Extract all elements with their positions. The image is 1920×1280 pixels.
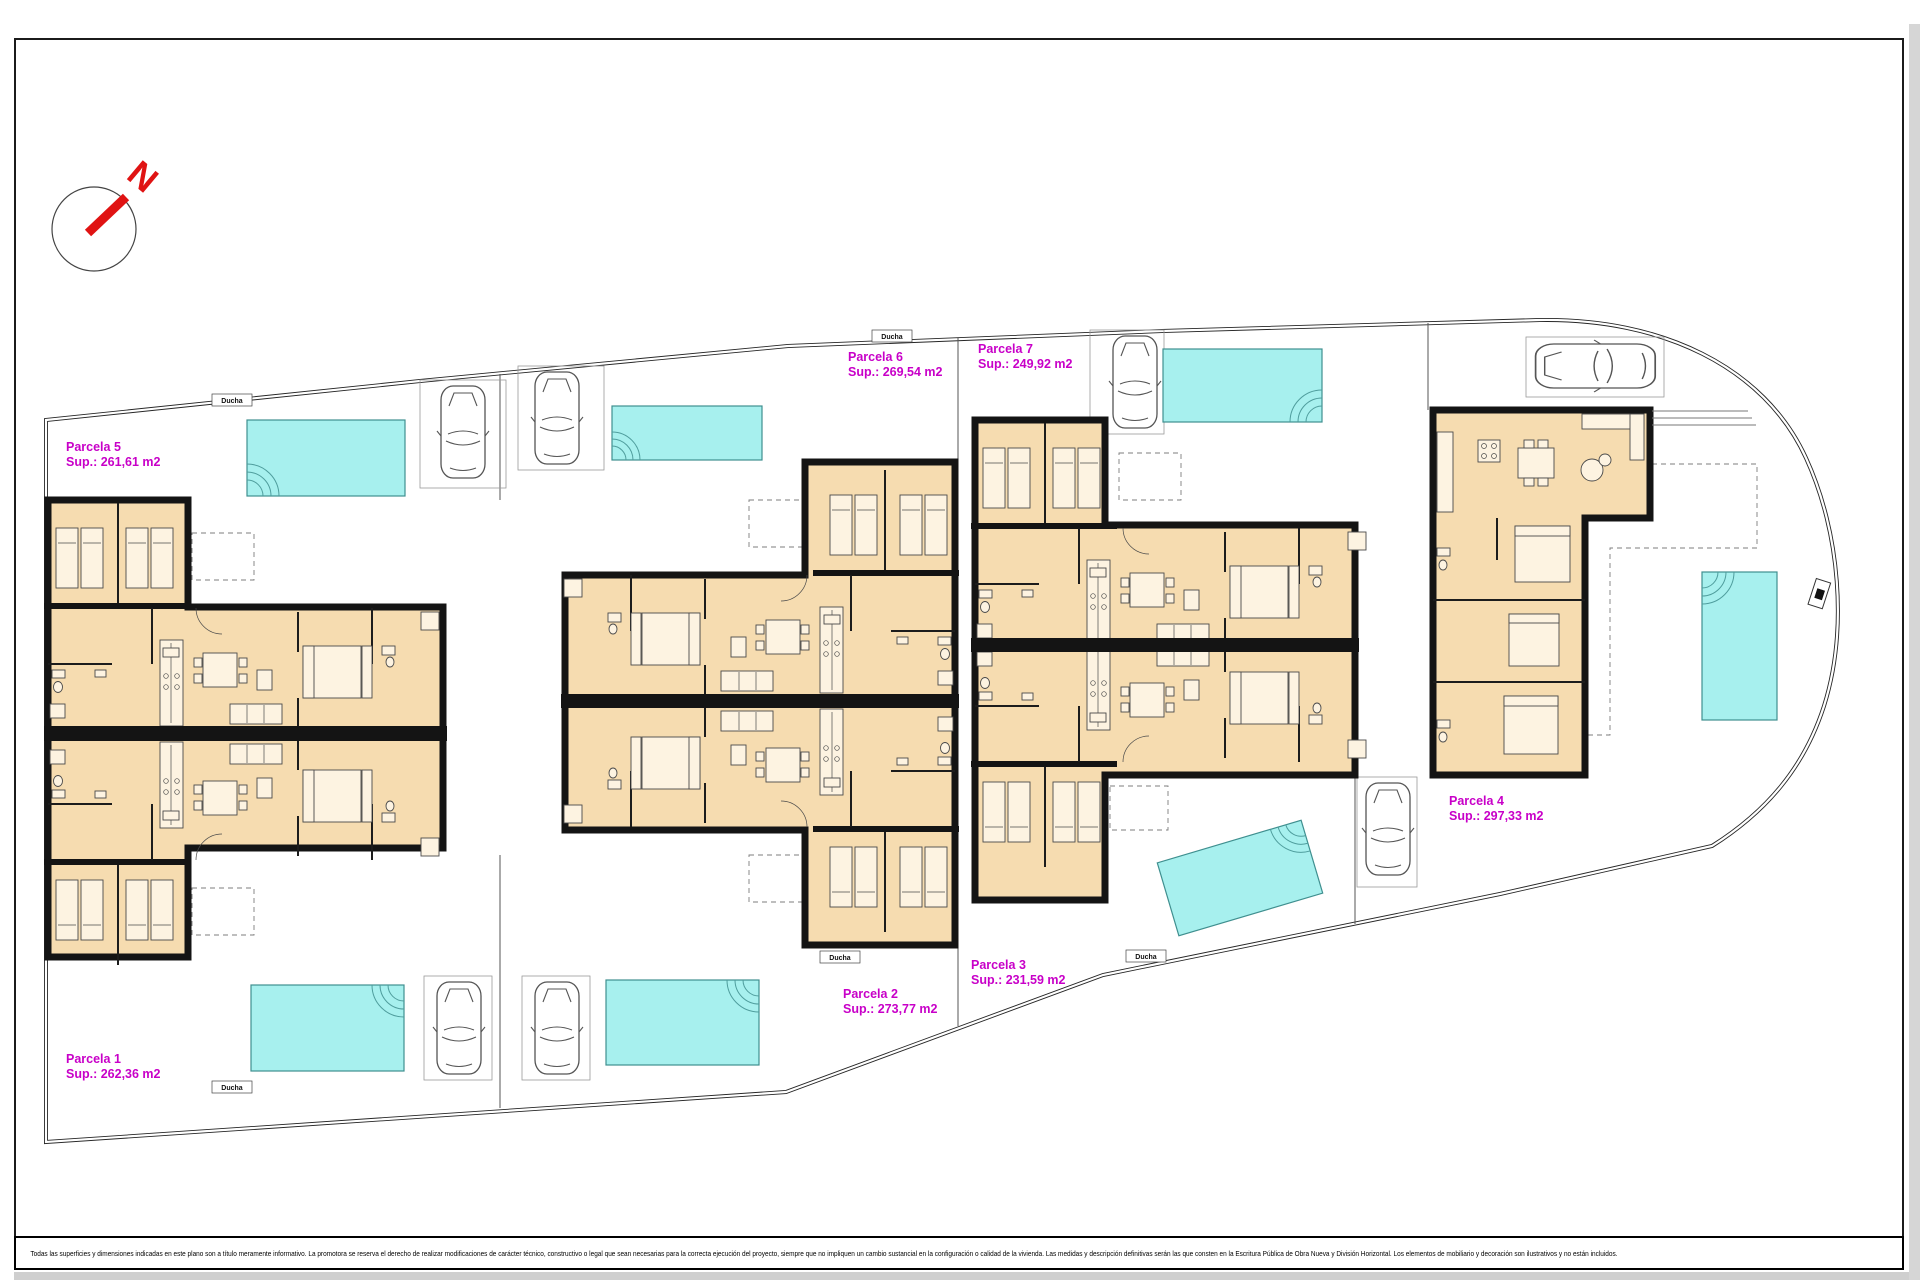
car-icon [1109, 336, 1161, 428]
parcel-2-name: Parcela 2 [843, 987, 898, 1001]
car-icon [531, 372, 583, 464]
swimming-pool-parcela-7 [1163, 349, 1322, 422]
car-icon [1362, 783, 1414, 875]
shower-label: Ducha [212, 1081, 252, 1093]
disclaimer-text: Todas las superficies y dimensiones indi… [16, 1249, 1618, 1258]
driveway-lines [1652, 411, 1756, 425]
shower-label: Ducha [1126, 950, 1166, 962]
swimming-pool-parcela-4 [1702, 572, 1777, 720]
car-icon [433, 982, 485, 1074]
party-wall [561, 694, 959, 708]
parcel-2-area: Sup.: 273,77 m2 [843, 1002, 938, 1016]
parcel-7-area: Sup.: 249,92 m2 [978, 357, 1073, 371]
swimming-pool-parcela-6 [612, 406, 762, 460]
party-wall [44, 726, 447, 741]
svg-text:Ducha: Ducha [829, 955, 851, 962]
svg-text:Ducha: Ducha [221, 398, 243, 405]
parcel-7-name: Parcela 7 [978, 342, 1033, 356]
car-icon [531, 982, 583, 1074]
north-letter: N [120, 152, 166, 200]
shower-label: Ducha [872, 330, 912, 342]
parcel-1-name: Parcela 1 [66, 1052, 121, 1066]
parcel-4-area: Sup.: 297,33 m2 [1449, 809, 1544, 823]
disclaimer-bar: Todas las superficies y dimensiones indi… [14, 1236, 1904, 1270]
swimming-pool-parcela-5 [247, 420, 405, 496]
parcel-3-area: Sup.: 231,59 m2 [971, 973, 1066, 987]
shower-label: Ducha [212, 394, 252, 406]
svg-text:Ducha: Ducha [221, 1085, 243, 1092]
swimming-pool-parcela-3 [1157, 820, 1322, 935]
parcel-5-area: Sup.: 261,61 m2 [66, 455, 161, 469]
north-compass: N [52, 152, 166, 271]
parcel-6-area: Sup.: 269,54 m2 [848, 365, 943, 379]
building-parcelas-7-3 [971, 420, 1366, 900]
parcel-6-name: Parcela 6 [848, 350, 903, 364]
swimming-pool-parcela-2 [606, 980, 759, 1065]
swimming-pool-parcela-1 [251, 985, 404, 1071]
car-icon [437, 386, 489, 478]
parcel-5-name: Parcela 5 [66, 440, 121, 454]
party-wall [971, 638, 1359, 652]
building-parcelas-5-1 [44, 500, 447, 965]
parcel-3-name: Parcela 3 [971, 958, 1026, 972]
svg-text:Ducha: Ducha [1135, 954, 1157, 961]
car-icon [1536, 340, 1656, 392]
site-plan-page: Parcela 5 Sup.: 261,61 m2 Parcela 1 Sup.… [0, 0, 1920, 1280]
svg-text:Ducha: Ducha [881, 334, 903, 341]
building-parcelas-6-2 [561, 462, 959, 945]
site-plan-svg: Parcela 5 Sup.: 261,61 m2 Parcela 1 Sup.… [0, 0, 1920, 1280]
gate-marker [1808, 578, 1831, 608]
parcel-4-name: Parcela 4 [1449, 794, 1504, 808]
villa-building-parcela-4 [1433, 410, 1650, 775]
shower-label: Ducha [820, 951, 860, 963]
parcel-1-area: Sup.: 262,36 m2 [66, 1067, 161, 1081]
